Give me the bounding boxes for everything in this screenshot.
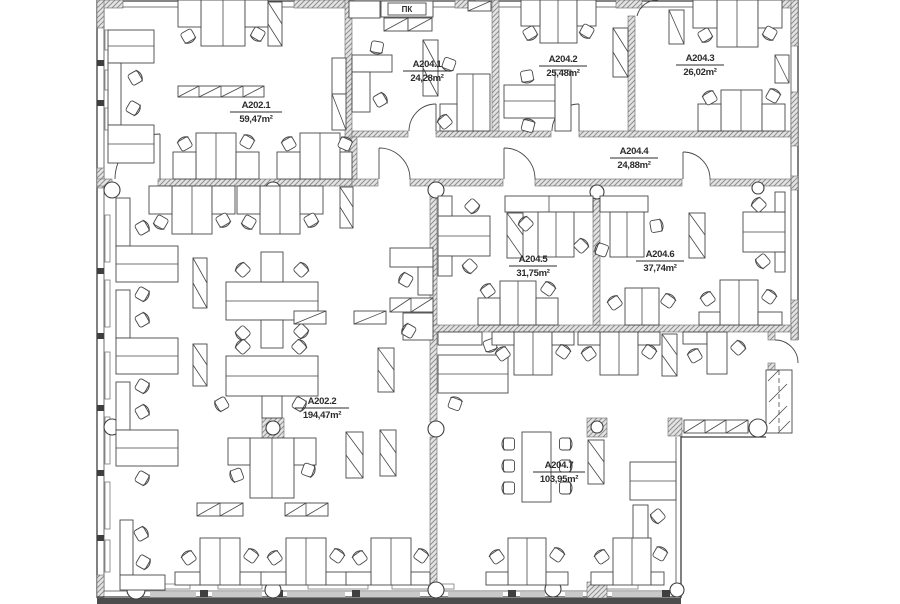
svg-text:31,75m²: 31,75m²: [516, 268, 549, 279]
svg-text:A204.1: A204.1: [413, 59, 443, 70]
furniture-a204-3: [669, 0, 789, 131]
svg-text:A204.2: A204.2: [549, 54, 578, 65]
furniture-a204-6: [593, 192, 785, 325]
room-label-a204-3: A204.326,02m²: [676, 53, 724, 78]
svg-text:194,47m²: 194,47m²: [303, 410, 341, 421]
svg-text:103,95m²: 103,95m²: [540, 474, 578, 485]
svg-text:24,28m²: 24,28m²: [410, 73, 443, 84]
furniture-a202-1: [108, 0, 354, 179]
furniture-a204-7: [438, 332, 748, 585]
svg-text:25,48m²: 25,48m²: [546, 68, 579, 79]
door-a204-1: [409, 104, 436, 131]
svg-text:A204.4: A204.4: [620, 146, 650, 157]
furniture-a204-5: [438, 196, 593, 325]
furniture-a204-2: [504, 0, 628, 133]
svg-text:A202.2: A202.2: [308, 396, 337, 407]
door-corridor-a204-6: [683, 152, 710, 179]
svg-text:37,74m²: 37,74m²: [643, 263, 676, 274]
pk-label: ПК: [402, 5, 413, 14]
svg-text:59,47m²: 59,47m²: [239, 114, 272, 125]
svg-text:A204.6: A204.6: [646, 249, 675, 260]
svg-text:24,88m²: 24,88m²: [617, 160, 650, 171]
room-label-a204-4: A204.424,88m²: [610, 146, 658, 171]
door-corridor-a202-2: [379, 148, 410, 179]
door-stair-entry: [775, 340, 798, 363]
floor-plan-drawing: ПК: [0, 0, 900, 604]
svg-text:A204.7: A204.7: [545, 460, 574, 471]
pk-equipment-box: ПК: [381, 1, 433, 17]
room-label-a202-1: A202.159,47m²: [230, 100, 282, 125]
shaft: [766, 370, 792, 433]
svg-text:A204.5: A204.5: [519, 254, 549, 265]
door-corridor-a204-5: [504, 148, 535, 179]
room-label-a204-2: A204.225,48m²: [539, 54, 587, 79]
floor-plan-canvas: ПК: [0, 0, 900, 604]
svg-text:26,02m²: 26,02m²: [683, 67, 716, 78]
svg-text:A202.1: A202.1: [242, 100, 272, 111]
svg-text:A204.3: A204.3: [686, 53, 715, 64]
furniture-a202-2: [116, 186, 433, 590]
